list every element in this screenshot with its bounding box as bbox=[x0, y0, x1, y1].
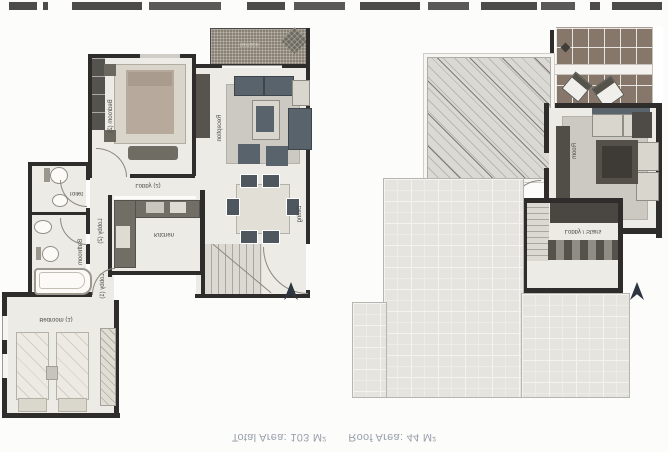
roof-area-text: Roof Area: 44 M² bbox=[348, 431, 436, 443]
roof-terrace bbox=[383, 178, 524, 398]
coffee-table-top bbox=[602, 146, 632, 178]
kitchen-sink bbox=[116, 226, 130, 248]
dining-label: Dining bbox=[295, 192, 305, 236]
single-bed bbox=[56, 332, 89, 400]
area-caption: Total Area: 103 M² Roof Area: 44 M² bbox=[0, 431, 668, 443]
wall bbox=[108, 195, 112, 277]
stove bbox=[146, 202, 164, 213]
crop-mark bbox=[612, 2, 662, 10]
skylight-void bbox=[428, 58, 550, 178]
side-table bbox=[632, 112, 652, 138]
reception-label: Reception bbox=[215, 106, 225, 150]
floorplan-image: Terrace Bedroom (2) Reception bbox=[0, 0, 668, 452]
bed-pillow bbox=[18, 398, 47, 412]
wall bbox=[28, 162, 90, 166]
chair bbox=[262, 174, 280, 188]
stairs bbox=[205, 244, 262, 294]
armchair bbox=[292, 80, 310, 106]
wall bbox=[544, 103, 549, 153]
wc-tank bbox=[36, 247, 41, 260]
wall bbox=[620, 228, 662, 234]
coffee-table-top bbox=[256, 106, 274, 132]
terrace-label: Terrace bbox=[214, 38, 284, 50]
armchair bbox=[636, 172, 659, 201]
wall bbox=[86, 162, 90, 180]
stair-steps bbox=[527, 203, 549, 261]
kitchen-sink bbox=[170, 202, 186, 213]
wardrobe bbox=[100, 328, 116, 406]
wall bbox=[28, 162, 32, 296]
chair bbox=[226, 198, 240, 216]
lobby2-hall-label: Lobby (2) bbox=[124, 180, 172, 191]
armchair bbox=[288, 108, 312, 150]
kitchen-label: Kitchen bbox=[142, 229, 186, 240]
crop-mark bbox=[43, 2, 48, 10]
pergola-side-strip bbox=[652, 27, 663, 105]
wall bbox=[618, 198, 623, 292]
window bbox=[140, 54, 180, 58]
nightstand bbox=[104, 64, 116, 76]
crop-mark bbox=[9, 2, 37, 10]
chair bbox=[240, 230, 258, 244]
ottoman bbox=[238, 144, 260, 164]
bedroom2-label: Bedroom (2) bbox=[106, 94, 116, 138]
bedroom1-label: Bedroom (1) bbox=[28, 314, 84, 325]
wall bbox=[550, 30, 554, 106]
window bbox=[222, 65, 282, 68]
sink bbox=[34, 220, 52, 234]
lobby-stairs-label: Lobby / Stairs bbox=[548, 226, 618, 237]
tv-unit bbox=[196, 74, 210, 138]
crop-mark bbox=[247, 2, 285, 10]
north-arrow-icon bbox=[630, 282, 644, 300]
wc-bowl bbox=[42, 246, 59, 262]
wall bbox=[130, 174, 195, 178]
crop-mark bbox=[590, 2, 600, 10]
bed-pillow bbox=[58, 398, 87, 412]
ottoman bbox=[266, 146, 288, 166]
roof-terrace bbox=[521, 293, 630, 398]
armchair bbox=[636, 142, 659, 171]
stair-flight-dark bbox=[550, 203, 618, 223]
crop-mark bbox=[72, 2, 142, 10]
chair bbox=[262, 230, 280, 244]
chair bbox=[240, 174, 258, 188]
total-area-text: Total Area: 103 M² bbox=[232, 431, 327, 443]
dresser bbox=[128, 146, 178, 160]
sofa bbox=[264, 76, 294, 96]
wall bbox=[86, 244, 90, 264]
dining-table bbox=[236, 184, 290, 234]
crop-mark bbox=[294, 2, 345, 10]
wall bbox=[2, 413, 120, 418]
crop-mark bbox=[428, 2, 469, 10]
wall bbox=[32, 212, 88, 215]
window bbox=[2, 354, 8, 378]
crop-mark bbox=[149, 2, 221, 10]
single-bed bbox=[16, 332, 49, 400]
sofa bbox=[592, 114, 623, 137]
crop-mark bbox=[360, 2, 420, 10]
crop-mark bbox=[481, 2, 537, 10]
sofa bbox=[234, 76, 264, 96]
crop-mark bbox=[541, 2, 575, 10]
roof-terrace bbox=[352, 302, 387, 398]
roof-room-label: Room bbox=[570, 129, 580, 173]
stair-flight-steps bbox=[548, 240, 618, 260]
pergola-beam bbox=[548, 64, 662, 75]
bed-pillow bbox=[128, 72, 172, 86]
nightstand bbox=[46, 366, 58, 380]
window bbox=[2, 316, 8, 340]
lobby2-corridor-label: Lobby (2) bbox=[96, 209, 106, 253]
